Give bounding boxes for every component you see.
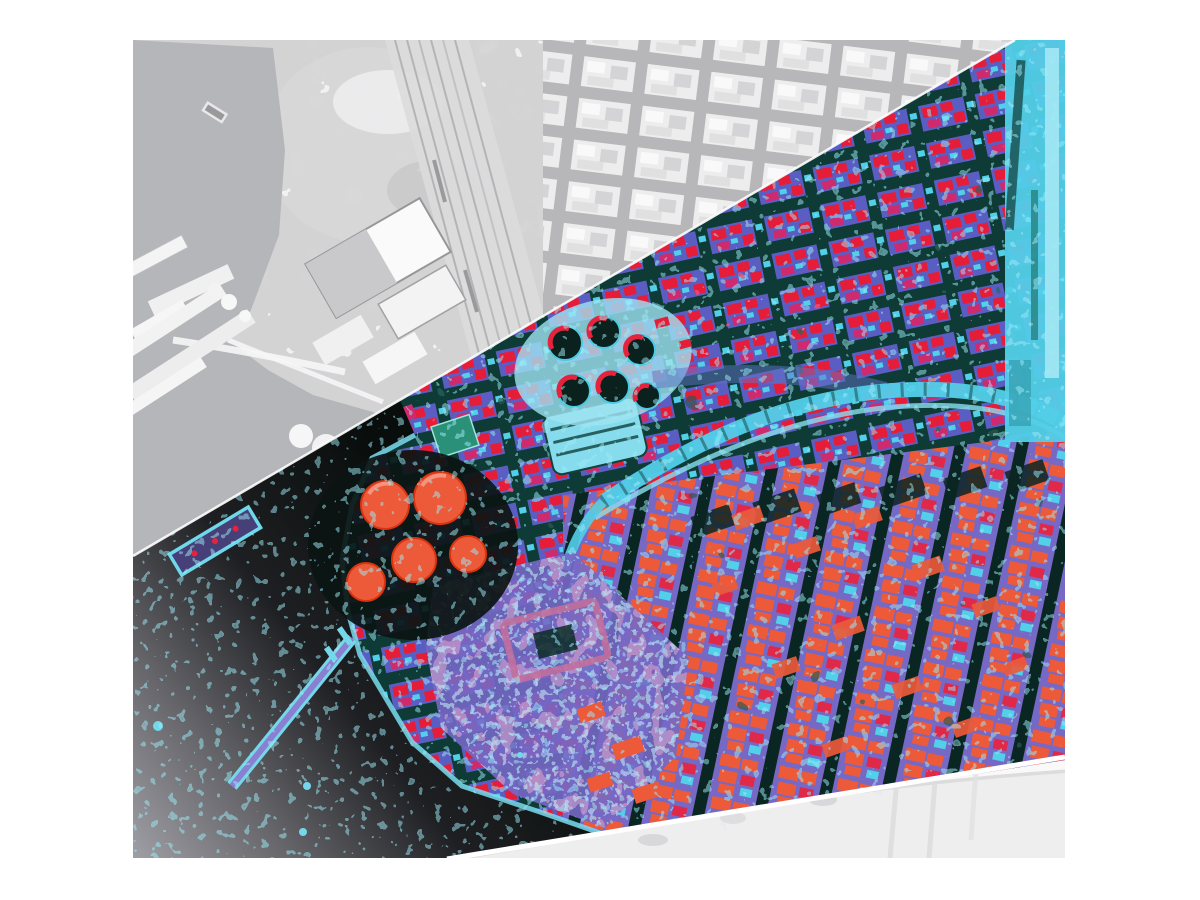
dock-blob: [239, 310, 251, 322]
dock-blob: [221, 294, 237, 310]
figure-page: [0, 0, 1200, 900]
satellite-figure: [133, 40, 1065, 858]
tank-blob: [289, 424, 313, 448]
strip-blob: [638, 834, 668, 846]
dock-blob: [208, 283, 222, 297]
